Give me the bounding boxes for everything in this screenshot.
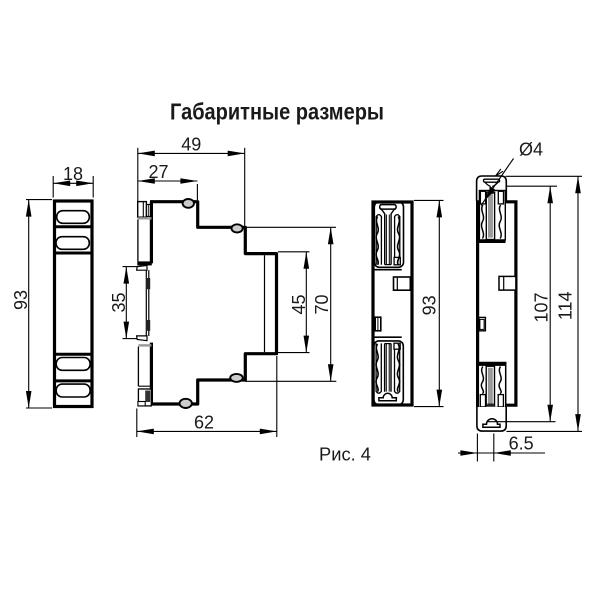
svg-text:6.5: 6.5 (509, 434, 534, 454)
svg-text:93: 93 (11, 290, 31, 310)
svg-text:Ø4: Ø4 (519, 140, 543, 160)
svg-text:93: 93 (420, 295, 440, 315)
svg-text:Рис. 4: Рис. 4 (319, 445, 371, 465)
svg-text:114: 114 (556, 291, 576, 320)
svg-text:45: 45 (289, 294, 309, 314)
svg-text:62: 62 (194, 412, 214, 432)
svg-text:107: 107 (532, 292, 552, 322)
svg-text:35: 35 (109, 292, 129, 312)
svg-text:18: 18 (63, 164, 83, 184)
svg-text:Габаритные размеры: Габаритные размеры (170, 99, 384, 125)
svg-text:27: 27 (148, 162, 168, 182)
svg-text:70: 70 (312, 294, 332, 314)
svg-text:49: 49 (181, 134, 201, 154)
